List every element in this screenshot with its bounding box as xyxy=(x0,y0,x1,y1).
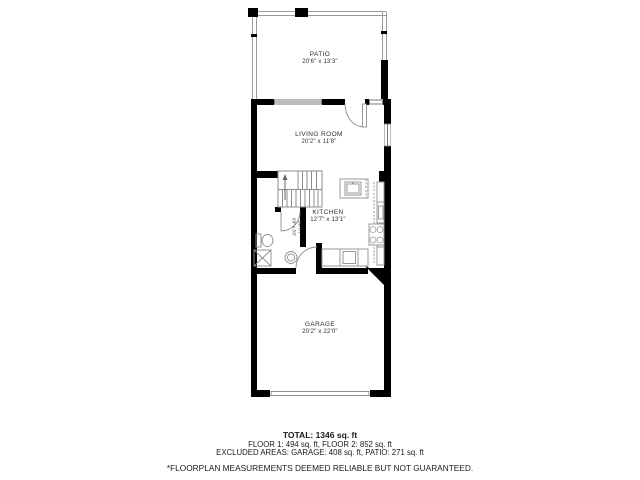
kitchen-name: KITCHEN xyxy=(310,209,346,217)
disclaimer-text: *FLOORPLAN MEASUREMENTS DEEMED RELIABLE … xyxy=(0,463,640,473)
room-label-patio: PATIO 20'6" x 13'3" xyxy=(302,51,338,67)
bath-dims: 6'8" x 3'6" xyxy=(292,218,297,236)
garage-dims: 20'2" x 22'0" xyxy=(302,329,338,337)
garage-entry-door xyxy=(296,247,317,274)
patio-name: PATIO xyxy=(302,51,338,59)
patio-dims: 20'6" x 13'3" xyxy=(302,59,338,67)
excluded-areas-text: EXCLUDED AREAS: GARAGE: 408 sq. ft, PATI… xyxy=(0,449,640,458)
floorplan-drawing xyxy=(0,0,640,480)
summary-block: TOTAL: 1346 sq. ft FLOOR 1: 494 sq. ft, … xyxy=(0,431,640,473)
toilet-bowl xyxy=(262,235,273,247)
stairs xyxy=(278,171,322,207)
bath-name: BATH xyxy=(297,218,303,236)
garage-door xyxy=(270,390,370,397)
room-label-garage: GARAGE 20'2" x 22'0" xyxy=(302,321,338,337)
kitchen-counter xyxy=(377,182,384,265)
patio-door xyxy=(345,104,367,127)
room-label-bath: BATH 6'8" x 3'6" xyxy=(292,218,303,236)
kitchen-dims: 12'7" x 13'1" xyxy=(310,217,346,225)
garage-name: GARAGE xyxy=(302,321,338,329)
pedestal-sink xyxy=(285,252,297,264)
room-label-living-room: LIVING ROOM 20'2" x 11'8" xyxy=(295,131,343,147)
room-label-kitchen: KITCHEN 12'7" x 13'1" xyxy=(310,209,346,225)
floorplan-page: PATIO 20'6" x 13'3" LIVING ROOM 20'2" x … xyxy=(0,0,640,480)
living-room-name: LIVING ROOM xyxy=(295,131,343,139)
living-room-dims: 20'2" x 11'8" xyxy=(295,139,343,147)
